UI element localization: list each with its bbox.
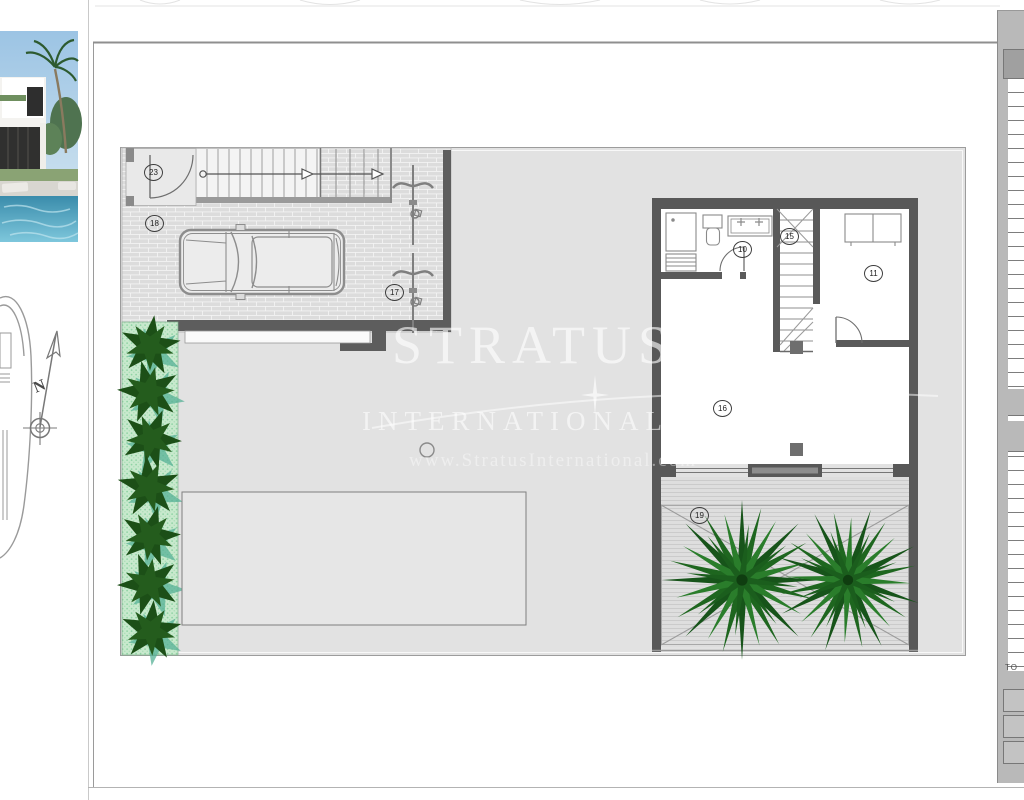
floor-plan-sheet: STRATUS INTERNATIONAL www.StratusInterna… xyxy=(0,0,1024,800)
watermark-flourish xyxy=(0,0,1024,800)
